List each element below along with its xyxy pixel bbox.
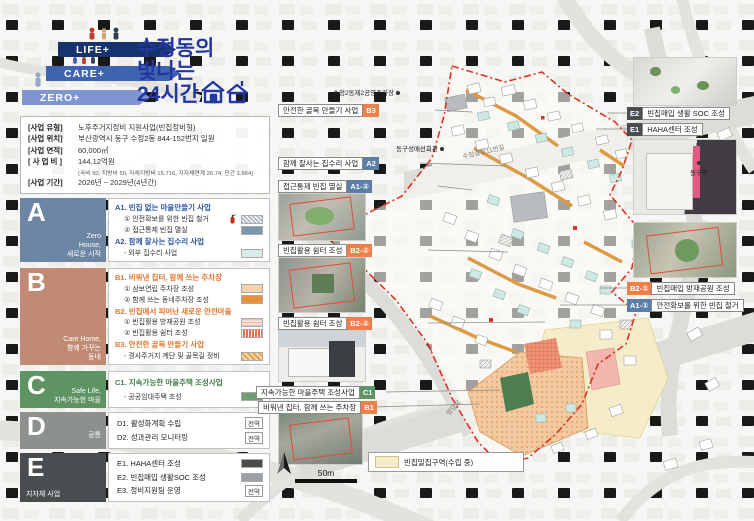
zone-badge: 전역 xyxy=(245,485,263,497)
legend-swatch-soc xyxy=(241,473,263,482)
group-heading: B2. 빈집에서 피어난 새로운 안전마을 xyxy=(115,306,263,317)
code-badge: B3 xyxy=(363,104,379,117)
section-e-tab: E 지자체 사업 xyxy=(20,453,106,502)
callout-a2: 함께 잘사는 집수리 사업A2 xyxy=(278,157,379,170)
legend-swatch-alley xyxy=(241,352,263,361)
map-marker-district-office: 동구청 xyxy=(690,160,708,177)
info-value: 2026년 ~ 2029년(4년간) xyxy=(78,177,157,188)
info-row: [사업 기간]2026년 ~ 2029년(4년간) xyxy=(28,177,262,188)
plan-item: ② 빈집활용 쉼터 조성 xyxy=(115,328,263,338)
care-plus-label: CARE+ xyxy=(64,68,105,80)
section-subtitle: 지자체 사업 xyxy=(26,490,60,499)
project-info-box: [사업 유형]노후주거지정비 지원사업(빈집정비형) [사업 위치]부산광역시 … xyxy=(20,116,270,194)
info-label: [사업 기간] xyxy=(28,177,78,188)
callout-b2-1: B2-①빈집매입 방재공원 조성 xyxy=(627,282,735,295)
section-subtitle: 공통 xyxy=(88,431,101,440)
scale-bar-line xyxy=(295,479,357,483)
legend-swatch-haha-center xyxy=(241,459,263,468)
callout-b2-2b: 빈집활용 쉼터 조성B2-② xyxy=(278,317,372,330)
code-badge: E2 xyxy=(627,107,642,120)
photo-disaster-park-aerial xyxy=(633,222,737,278)
life-plus-label: LIFE+ xyxy=(76,44,110,56)
plan-item: ② 함께 쓰는 동네주차장 조성 xyxy=(115,295,263,305)
plan-item: ① 빈집활용 방재공원 조성 xyxy=(115,317,263,327)
zone-badge: 전역 xyxy=(245,417,263,429)
section-d-content: D1. 활성화계획 수립전역 D2. 성과관리 모니터링전역 xyxy=(108,412,270,449)
info-label: [ 사 업 비 ] xyxy=(28,156,78,167)
code-badge: A2 xyxy=(363,157,379,170)
plan-item: - 공공임대주택 조성 xyxy=(115,392,263,402)
section-e: E 지자체 사업 E1. HAHA센터 조성 E2. 빈집매입 생활SOC 조성… xyxy=(20,453,270,502)
code-badge: E1 xyxy=(627,123,642,136)
info-row: [사업 면적]60,000㎡ xyxy=(28,145,262,156)
section-b: B Care Home, 함께 가꾸는 동네 B1. 비워낸 집터, 함께 쓰는… xyxy=(20,268,270,365)
code-badge: A1-② xyxy=(347,180,371,193)
photo-soc-plaza-render xyxy=(633,57,737,106)
section-letter: C xyxy=(27,370,46,401)
map-marker-hall: 동구성매선회관 xyxy=(396,143,444,153)
legend-swatch-shelter xyxy=(241,329,263,338)
legend-swatch-parking2 xyxy=(241,295,263,304)
section-letter: B xyxy=(27,267,46,298)
section-subtitle: Safe Life, 지속가능한 마을 xyxy=(54,387,101,405)
cost-breakdown-note: (국비 50, 지방비 50, 자체지방비 15.716, 지자체연계 26.7… xyxy=(78,168,262,177)
section-letter: A xyxy=(27,197,46,228)
section-d: D 공통 D1. 활성화계획 수립전역 D2. 성과관리 모니터링전역 xyxy=(20,412,270,449)
info-row: [사업 위치]부산광역시 동구 수정2동 844-152번지 일원 xyxy=(28,133,262,144)
legend-swatch-park xyxy=(241,318,263,327)
group-heading: B3. 안전한 골목 만들기 사업 xyxy=(115,339,263,350)
callout-c1: 지속가능한 마을주택 조성사업C1 xyxy=(256,386,375,399)
plan-item: ① 안전확보를 위한 빈집 철거 xyxy=(115,214,263,224)
info-value: 60,000㎡ xyxy=(78,145,108,156)
zero-plus-arrow: ZERO+ xyxy=(22,90,150,105)
shelter-site-b2 xyxy=(524,338,562,374)
legend-label: 빈집밀집구역(수립 중) xyxy=(404,457,473,468)
marker-dot-icon xyxy=(697,161,701,165)
code-badge: C1 xyxy=(360,386,376,399)
plan-item: ① 삼보연립 주차장 조성 xyxy=(115,284,263,294)
callout-a1-1: A1-①안전확보를 위한 빈집 철거 xyxy=(627,299,744,312)
zone-badge: 전역 xyxy=(245,432,263,444)
plan-item: - 외부 집수리 사업 xyxy=(115,248,263,258)
callout-e2: E2빈집매입 생활 SOC 조성 xyxy=(627,107,730,120)
callout-e1: E1HAHA센터 조성 xyxy=(627,123,703,136)
info-label: [사업 위치] xyxy=(28,133,78,144)
site-outline xyxy=(289,417,353,460)
section-letter: D xyxy=(27,411,46,442)
info-label: [사업 면적] xyxy=(28,145,78,156)
north-arrow-icon xyxy=(276,452,292,476)
code-badge: A1-① xyxy=(627,299,651,312)
section-subtitle: Care Home, 함께 가꾸는 동네 xyxy=(63,335,101,362)
group-heading: A1. 빈집 없는 마을만들기 사업 xyxy=(115,202,263,213)
park-site-b2 xyxy=(586,348,620,390)
marker-dot-icon xyxy=(396,91,400,95)
plan-item: D2. 성과관리 모니터링전역 xyxy=(115,432,263,444)
legend-swatch-demolition xyxy=(241,215,263,224)
group-heading: B1. 비워낸 집터, 함께 쓰는 주차장 xyxy=(115,272,263,283)
photo-haha-center-render xyxy=(633,139,737,215)
legend-swatch-vacant-cluster xyxy=(375,456,399,468)
zero-plus-label: ZERO+ xyxy=(40,92,80,104)
section-a: A Zero House, 새로운 시작 A1. 빈집 없는 마을만들기 사업 … xyxy=(20,198,270,262)
title-line-3: 24시간 xyxy=(137,78,199,108)
scale-bar: 50m xyxy=(295,468,357,483)
info-row: [사업 유형]노후주거지정비 지원사업(빈집정비형) xyxy=(28,122,262,133)
map-marker-parking-lot: 수정2동제2공영주차장 xyxy=(333,87,400,97)
photo-aerial-shelter-site-1 xyxy=(278,193,366,241)
info-value: 부산광역시 동구 수정2동 844-152번지 일원 xyxy=(78,133,215,144)
callout-a1-2: 접근통제 빈집 멸실A1-② xyxy=(278,180,372,193)
section-a-content: A1. 빈집 없는 마을만들기 사업 ① 안전확보를 위한 빈집 철거 ② 접근… xyxy=(108,198,270,262)
plan-item: D1. 활성화계획 수립전역 xyxy=(115,417,263,429)
plan-item: E1. HAHA센터 조성 xyxy=(115,458,263,469)
marker-dot-icon xyxy=(440,147,444,151)
plan-item: E2. 빈집매입 생활SOC 조성 xyxy=(115,472,263,483)
code-badge: B2-② xyxy=(347,317,371,330)
info-label: [사업 유형] xyxy=(28,122,78,133)
scale-label: 50m xyxy=(295,468,357,478)
code-badge: B2-① xyxy=(627,282,651,295)
house-icon xyxy=(199,78,251,106)
callout-b3: 안전한 골목 만들기 사업B3 xyxy=(278,104,379,117)
callout-b2-2a: 빈집활용 쉼터 조성B2-② xyxy=(278,244,372,257)
map-legend: 빈집밀집구역(수립 중) xyxy=(368,452,524,472)
section-b-tab: B Care Home, 함께 가꾸는 동네 xyxy=(20,268,106,365)
plan-item: E3. 정비지원팀 운영전역 xyxy=(115,485,263,497)
group-heading: C1. 지속가능한 마을주택 조성사업 xyxy=(115,377,263,388)
photo-aerial-shelter-site-2 xyxy=(278,257,366,313)
legend-swatch-parking1 xyxy=(241,284,263,293)
section-c-content: C1. 지속가능한 마을주택 조성사업 - 공공임대주택 조성 xyxy=(108,371,270,408)
section-letter: E xyxy=(27,452,44,483)
info-value: 144.12억원 xyxy=(78,156,115,167)
legend-swatch-access-control xyxy=(241,226,263,235)
section-c: C Safe Life, 지속가능한 마을 C1. 지속가능한 마을주택 조성사… xyxy=(20,371,270,408)
legend-swatch-repair xyxy=(241,249,263,258)
info-row: [ 사 업 비 ]144.12억원 xyxy=(28,156,262,167)
code-badge: B1 xyxy=(361,401,377,414)
code-badge: B2-② xyxy=(347,244,371,257)
section-c-tab: C Safe Life, 지속가능한 마을 xyxy=(20,371,106,408)
fire-extinguisher-icon xyxy=(229,214,236,224)
info-value: 노후주거지정비 지원사업(빈집정비형) xyxy=(78,122,195,133)
photo-village-house-render xyxy=(278,330,366,382)
plan-item: - 경사주거지 계단 및 골목길 정비 xyxy=(115,351,263,361)
section-b-content: B1. 비워낸 집터, 함께 쓰는 주차장 ① 삼보연립 주차장 조성 ② 함께… xyxy=(108,268,270,365)
group-heading: A2. 함께 잘사는 집수리 사업 xyxy=(115,236,263,247)
poster-page: LIFE+ CARE+ ZERO+ 수정동의 빛나는 24시간 [사업 유형]노… xyxy=(0,0,754,521)
section-a-tab: A Zero House, 새로운 시작 xyxy=(20,198,106,262)
callout-b1: 비워낸 집터, 함께 쓰는 주차장B1 xyxy=(258,401,377,414)
plan-item: ② 접근통제 빈집 멸실 xyxy=(115,225,263,235)
section-e-content: E1. HAHA센터 조성 E2. 빈집매입 생활SOC 조성 E3. 정비지원… xyxy=(108,453,270,502)
section-subtitle: Zero House, 새로운 시작 xyxy=(67,232,101,259)
section-d-tab: D 공통 xyxy=(20,412,106,449)
